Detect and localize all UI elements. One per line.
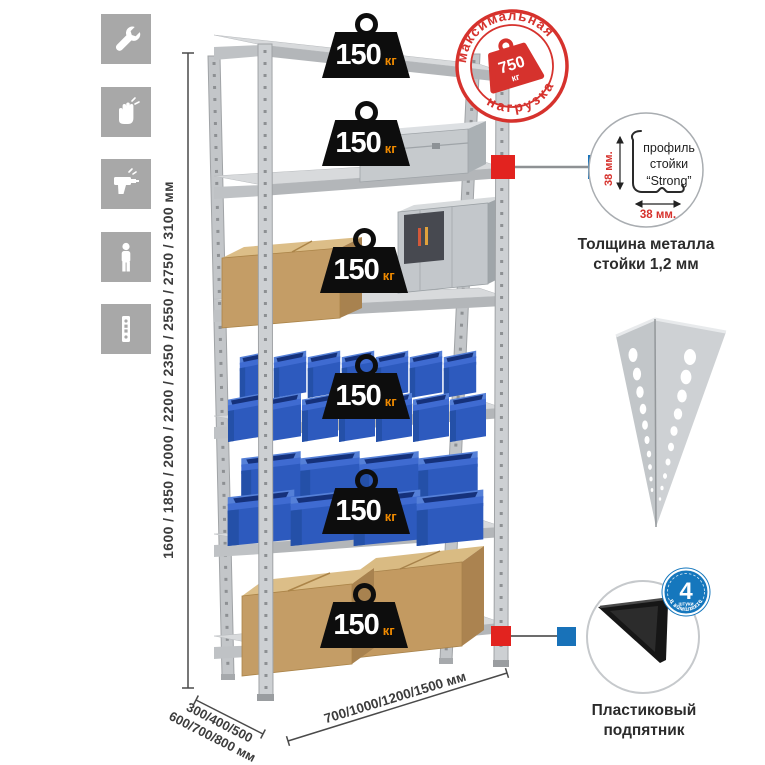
stamp-weight-icon: 750 кг [480,33,541,90]
drill-icon [101,159,151,209]
profile-detail-circle: 38 мм. 38 мм. профиль стойки “Strong” [589,113,703,227]
plastic-foot-circle: 4 штуки в комплекте [587,568,711,694]
upright-post-icon [101,304,151,354]
shelving-infographic: максимальная нагрузка 750 кг 38 мм. 38 м… [0,0,765,765]
shelf-load-badge-3: 150кг [320,228,408,293]
wrench-icon [101,14,151,64]
height-dimension-line [182,53,194,688]
height-options-label: 1600 / 1850 / 2000 / 2200 / 2350 / 2550 … [160,80,182,660]
foot-caption: Пластиковый подпятник [556,701,732,741]
profile-vertical-dim: 38 мм. [603,151,615,186]
included-badge: 4 штуки в комплекте [662,568,711,617]
shelf-load-badge-1: 150кг [322,13,410,78]
profile-horizontal-dim: 38 мм. [640,209,676,221]
shelf-load-badge-6: 150кг [320,583,408,648]
profile-caption: Толщина металла стойки 1,2 мм [558,235,734,275]
dark-case [404,211,444,264]
person-icon [101,232,151,282]
profile-label-1: профиль [643,141,695,155]
angle-post-image [616,319,726,527]
connector-bottom [491,626,576,646]
max-load-stamp: максимальная нагрузка 750 кг [442,0,580,135]
shelf-load-badge-5: 150кг [322,469,410,534]
shelf-load-badge-4: 150кг [322,354,410,419]
gloves-icon [101,87,151,137]
profile-label-3: “Strong” [646,174,691,188]
shelf-load-badge-2: 150кг [322,101,410,166]
profile-label-2: стойки [650,157,688,171]
